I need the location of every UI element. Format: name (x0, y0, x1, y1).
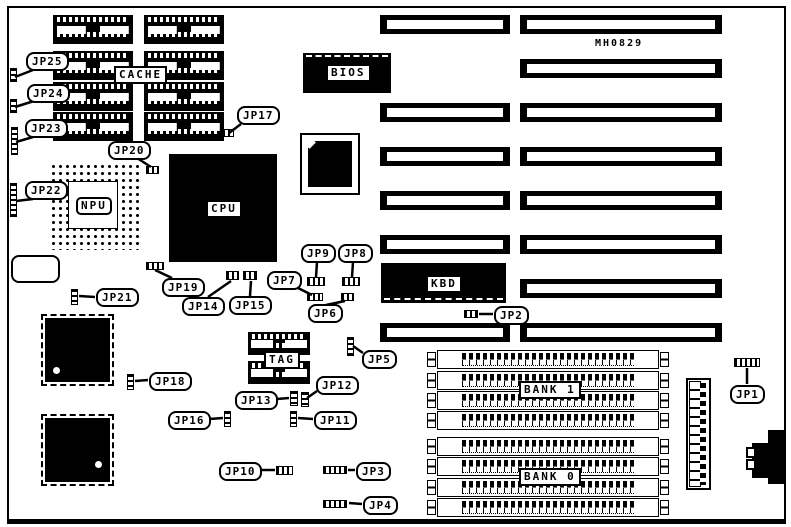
callout-jp4: JP4 (363, 496, 398, 515)
jumper-jp1 (734, 358, 760, 367)
simm-slot-bank1 (437, 350, 659, 369)
callout-jp16: JP16 (168, 411, 211, 430)
crystal-oscillator (11, 255, 60, 283)
expansion-slot (520, 323, 722, 342)
keyboard-connector (752, 443, 786, 478)
cpu-label: CPU (206, 200, 242, 218)
qfp-chip (45, 318, 110, 382)
bank1-label: BANK 1 (519, 381, 581, 399)
callout-jp6: JP6 (308, 304, 343, 323)
jumper-jp25 (10, 68, 17, 82)
callout-jp25: JP25 (26, 52, 69, 71)
callout-jp8: JP8 (338, 244, 373, 263)
expansion-slot (380, 103, 510, 122)
jumper-jp10 (276, 466, 293, 475)
jumper-jp24 (10, 99, 17, 113)
simm-slot-bank1 (437, 411, 659, 430)
expansion-slot (380, 235, 510, 254)
callout-jp3: JP3 (356, 462, 391, 481)
callout-jp13: JP13 (235, 391, 278, 410)
jumper-jp15 (243, 271, 257, 280)
cache-socket (144, 15, 224, 44)
callout-jp5: JP5 (362, 350, 397, 369)
expansion-slot (520, 147, 722, 166)
expansion-slot (380, 191, 510, 210)
expansion-slot (520, 235, 722, 254)
jumper-jp7 (307, 293, 323, 301)
callout-jp24: JP24 (27, 84, 70, 103)
plcc-chip (300, 133, 360, 195)
keyboard-connector-pin (746, 459, 756, 470)
jumper-jp20 (146, 166, 159, 174)
bios-label: BIOS (326, 64, 371, 82)
bank0-label: BANK 0 (519, 468, 581, 486)
cache-label: CACHE (114, 66, 167, 84)
npu-label: NPU (76, 197, 112, 215)
cache-socket (144, 82, 224, 111)
callout-jp1: JP1 (730, 385, 765, 404)
callout-jp11: JP11 (314, 411, 357, 430)
jumper-jp18 (127, 374, 134, 390)
kbd-label: KBD (426, 275, 462, 293)
expansion-slot (520, 279, 722, 298)
cache-socket (53, 15, 133, 44)
expansion-slot (380, 323, 510, 342)
jumper-jp4 (323, 500, 347, 508)
callout-jp12: JP12 (316, 376, 359, 395)
expansion-slot (380, 15, 510, 34)
jumper-jp23 (11, 127, 18, 155)
jumper-jp12 (301, 392, 309, 407)
jumper-jp5 (347, 337, 354, 356)
callout-jp14: JP14 (182, 297, 225, 316)
callout-jp22: JP22 (25, 181, 68, 200)
part-number: MH0829 (595, 38, 643, 49)
jumper-jp8 (342, 277, 360, 286)
jumper-jp17 (222, 129, 234, 137)
tag-label: TAG (264, 351, 300, 369)
callout-jp18: JP18 (149, 372, 192, 391)
jumper-jp13 (290, 391, 298, 406)
callout-jp10: JP10 (219, 462, 262, 481)
jumper-jp6 (341, 293, 354, 301)
callout-jp23: JP23 (25, 119, 68, 138)
callout-jp19: JP19 (162, 278, 205, 297)
jumper-jp11 (290, 411, 297, 427)
plcc-notch (303, 136, 316, 149)
jumper-jp19 (146, 262, 164, 270)
expansion-slot (520, 103, 722, 122)
callout-jp9: JP9 (301, 244, 336, 263)
callout-jp21: JP21 (96, 288, 139, 307)
jumper-jp16 (224, 411, 231, 427)
pin1-dot (95, 461, 102, 468)
qfp-chip (45, 418, 110, 482)
jumper-jp22 (10, 183, 17, 217)
expansion-slot (380, 147, 510, 166)
jumper-jp3 (323, 466, 347, 474)
cache-socket (144, 112, 224, 141)
jumper-jp9 (307, 277, 325, 286)
callout-jp7: JP7 (267, 271, 302, 290)
expansion-slot (520, 191, 722, 210)
power-connector (686, 378, 711, 490)
expansion-slot (520, 15, 722, 34)
keyboard-connector-pin (746, 447, 756, 458)
simm-slot-bank0 (437, 437, 659, 456)
pin1-dot (53, 367, 60, 374)
callout-jp20: JP20 (108, 141, 151, 160)
callout-jp15: JP15 (229, 296, 272, 315)
jumper-jp2 (464, 310, 478, 318)
motherboard-diagram: CACHE NPU CPU BIOS KBD TAG MH0829 BANK 1 (0, 0, 791, 527)
jumper-jp14 (226, 271, 239, 280)
callout-jp2: JP2 (494, 306, 529, 325)
jumper-jp21 (71, 289, 78, 305)
simm-slot-bank0 (437, 498, 659, 517)
expansion-slot (520, 59, 722, 78)
callout-jp17: JP17 (237, 106, 280, 125)
